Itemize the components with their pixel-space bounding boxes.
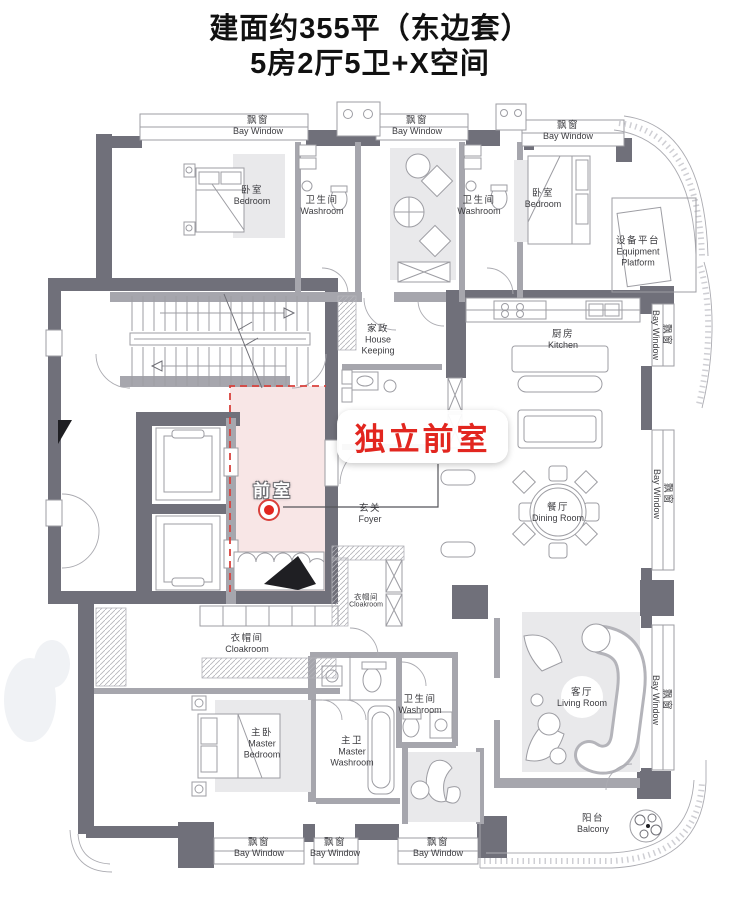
- label-front-room: 前室: [253, 477, 293, 502]
- washroom1-fixtures: [299, 145, 348, 294]
- front-room-marker: [258, 499, 280, 521]
- label-house-keeping: 家政 House Keeping: [361, 324, 394, 357]
- label-bedroom-right: 卧室 Bedroom: [525, 188, 562, 210]
- label-bedroom-left: 卧室 Bedroom: [234, 185, 271, 207]
- washroom2-fixtures: [464, 145, 513, 294]
- label-washroom-4: 卫生间 Washroom: [398, 694, 441, 716]
- label-washroom-1: 卫生间 Washroom: [300, 195, 343, 217]
- label-dining-room: 餐厅 Dining Room: [532, 502, 584, 524]
- study-room-furniture: [408, 752, 480, 822]
- floorplan-page: 建面约355平（东边套） 5房2厅5卫+X空间: [0, 0, 740, 899]
- cloakroom1-furniture: [96, 606, 338, 686]
- label-foyer: 玄关 Foyer: [358, 503, 381, 525]
- callout-independent-front-room: 独立前室: [337, 410, 508, 463]
- label-bay-window-right-3: 飘窗 Bay Window: [650, 675, 672, 725]
- label-washroom-2: 卫生间 Washroom: [457, 195, 500, 217]
- label-bay-window-right-1: 飘窗 Bay Window: [650, 310, 672, 360]
- label-bay-window-bottom-3: 飘窗 Bay Window: [413, 837, 463, 859]
- label-equipment-platform: 设备平台 Equipment Platform: [616, 236, 660, 269]
- label-master-bedroom: 主卧 Master Bedroom: [244, 728, 281, 761]
- label-master-washroom: 主卫 Master Washroom: [330, 736, 373, 769]
- label-cloakroom-1: 衣帽间 Cloakroom: [225, 633, 269, 655]
- label-bay-window-top-left: 飘窗 Bay Window: [233, 115, 283, 137]
- label-balcony: 阳台 Balcony: [577, 813, 609, 835]
- label-cloakroom-2: 衣帽间 Cloakroom: [349, 592, 383, 609]
- watermark-tree: [4, 640, 70, 742]
- front-room-marker-dot: [264, 505, 274, 515]
- label-bay-window-right-2: 飘窗 Bay Window: [651, 469, 673, 519]
- label-living-room: 客厅 Living Room: [557, 687, 607, 709]
- label-bay-window-bottom-2: 飘窗 Bay Window: [310, 837, 360, 859]
- label-bay-window-top-mid: 飘窗 Bay Window: [392, 115, 442, 137]
- label-kitchen: 厨房 Kitchen: [548, 329, 578, 351]
- staircase: [96, 294, 326, 388]
- label-bay-window-top-right: 飘窗 Bay Window: [543, 120, 593, 142]
- balcony-plant: [630, 810, 662, 842]
- label-bay-window-bottom-1: 飘窗 Bay Window: [234, 837, 284, 859]
